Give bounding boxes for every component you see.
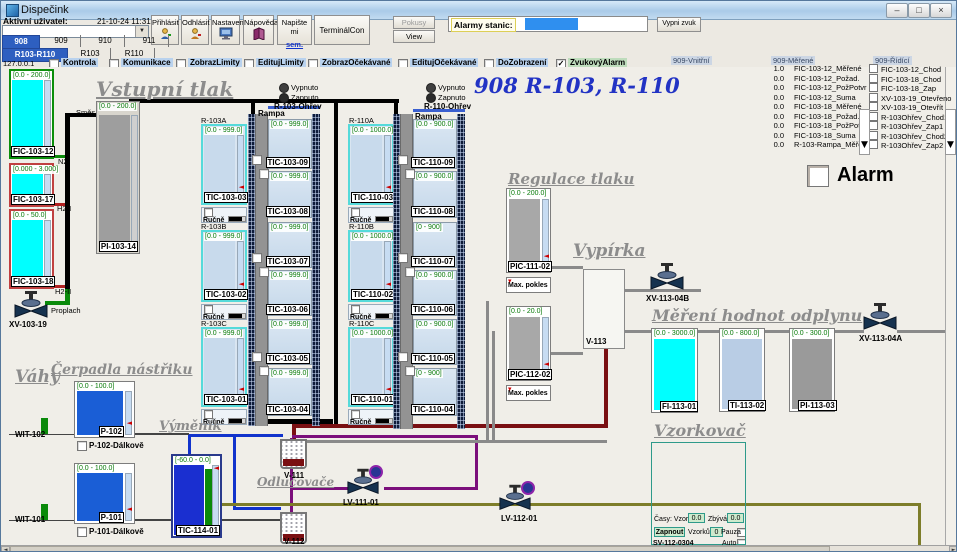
merene-value: 0.0 [746,112,794,122]
merene-value: 0.0 [746,131,794,141]
gauge-label: FIC-103-12 [11,146,55,157]
pipe-label-h2ii: H2-II [55,287,71,296]
gauge-tic-103-05[interactable]: [0.0 - 999.0] TIC-103-05 [268,319,312,365]
merene-scrollbar[interactable]: ▼ [859,109,870,155]
gauge-label: PIC-112-02 [508,369,552,380]
ridici-row[interactable]: XV-103-19_Otevřeno [869,93,957,103]
pipe-pic111-v113 [549,266,583,269]
p101-remote-label: P-101-Dálkově [89,527,144,536]
setpoint-marker-icon: ◄ [386,281,391,288]
gauge-label: TIC-103-03 [204,192,248,203]
separator-label: V-111 [284,471,304,480]
reactor-label-r110a: R-110A [349,116,374,125]
terminal-con-button[interactable]: TerminálCon [314,15,370,45]
gauge-tic-110-04[interactable]: [0 - 900] TIC-110-04 [413,368,457,416]
gauge-label: TIC-103-02 [204,289,248,300]
gauge-range: [0.0 - 100.0] [76,383,115,391]
merene-value: 0.0 [746,83,794,93]
vessel-v-113[interactable]: V-113 [583,269,625,349]
gauge-label: TI-113-02 [728,400,766,411]
sampler-remaining-label: Zbývá: [708,515,729,524]
pipe-blue-down [233,437,236,510]
gauge-range: [0.0 - 999.0] [204,233,243,241]
gauge-fill [792,339,832,409]
sampler-count-label: Vzorků: [688,528,712,537]
ridici-scrollbar[interactable]: ▼ [945,109,956,155]
ridici-checkbox[interactable] [869,83,878,92]
gauge-tic-110-09[interactable]: [0.0 - 900.0] TIC-110-09 [413,119,457,169]
gauge-range: [0.0 - 50.0] [12,212,47,220]
gauge-label: FI-113-01 [660,401,698,412]
gauge-label: TIC-103-08 [266,206,310,217]
ridici-row[interactable]: XV-103-19_Otevřít [869,102,957,112]
gauge-label: P-101 [99,512,124,523]
reactor-label-r103c: R-103C [201,319,227,328]
merene-list: 1.0FIC-103-12_Měřené0.0FIC-103-12_Požad.… [746,64,862,150]
ridici-checkbox[interactable] [869,112,878,121]
reactor-label-r103b: R-103B [201,222,226,231]
gauge-tic-103-04[interactable]: [0.0 - 999.0] TIC-103-04 [268,368,312,416]
manual-bar [375,313,393,319]
ridici-row[interactable]: R-103Ohřev_Chod1 [869,112,957,122]
gauge-label: TIC-103-04 [266,404,310,415]
close-button[interactable]: × [930,3,952,18]
gauge-range: [0.0 - 999.0] [270,321,309,329]
mode-label: Max. pokles [508,281,548,290]
gauge-fic-103-12[interactable]: ◄ [0.0 - 200.0] FIC-103-12 [9,69,54,159]
gauge-range: [0.0 - 900.0] [415,173,454,181]
gauge-range: [0.0 - 999.0] [270,370,309,378]
settings-button[interactable]: Nastavení [211,15,240,45]
valve-icon [13,291,49,319]
merene-row[interactable]: 0.0FIC-103-18_Měřené [746,102,862,112]
pipe-label-proplach: Proplach [51,306,81,315]
gauge-range: [0.0 - 100.0] [76,465,115,473]
ridici-checkbox[interactable] [869,121,878,130]
merene-row[interactable]: 1.0FIC-103-12_Měřené [746,64,862,74]
alarm-checkbox[interactable] [807,165,829,187]
ridici-name: R-103Ohřev_Zap2 [881,141,943,151]
gauge-label: TIC-110-01 [351,394,395,405]
manual-mode-r103b[interactable]: Ručně [201,304,247,320]
valve-label: LV-112-01 [501,514,537,523]
pipe-purple-valve-out [384,487,478,490]
ridici-list: FIC-103-12_ChodFIC-103-18_ChodFIC-103-18… [869,64,957,150]
merene-name: FIC-103-12_Měřené [794,64,862,74]
pipe-purple-right [475,435,478,489]
alarm-selection-highlight [525,18,578,30]
heading-main-title: 908 R-103, R-110 [474,73,680,98]
sampler-pause-label: Pauza [721,528,741,537]
gauge-range: [0.000 - 3.000] [12,166,59,174]
manual-mode-r110b[interactable]: Ručně [348,304,394,320]
pipe-offgas-main [292,424,608,428]
gauge-range: [0.0 - 300.0] [791,330,830,338]
gauge-slider[interactable] [131,115,138,251]
merene-row[interactable]: 0.0FIC-103-12_Požad. [746,74,862,84]
heading-mereni-odplynu: Měření hodnot odplynu [652,306,862,325]
gauge-range: [0.0 - 1000.0] [351,127,394,135]
gauge-range: [0.0 - 200.0] [508,190,547,198]
gauge-fill [99,115,130,251]
ridici-row[interactable]: FIC-103-18_Chod [869,74,957,84]
gauge-fi-113-01[interactable]: [0.0 - 3000.0] FI-113-01 [651,328,698,413]
merene-value: 0.0 [746,121,794,131]
gauge-range: [0.0 - 20.0] [508,308,543,316]
gauge-range: [0.0 - 200.0] [98,103,137,111]
gauge-range: [0.0 - 900.0] [415,121,454,129]
minimize-button[interactable]: – [886,3,908,18]
gauge-fill [654,339,695,410]
pipe-label-smes: Směs [76,108,95,117]
valve-label: XV-103-19 [9,320,47,329]
r103-ohrev-off-indicator[interactable] [279,83,289,93]
merene-name: FIC-103-18_Suma [794,131,856,141]
sampler-device-label: SV-112-0304 [653,539,693,548]
manual-bar [228,216,246,222]
ridici-checkbox[interactable] [869,102,878,111]
alarm-label: Alarm [837,163,894,187]
valve-xv-113-04a[interactable] [862,303,898,336]
write-me-button[interactable]: Napište mi sem. [277,15,312,45]
valve-icon [862,303,898,331]
window-title: Dispečink [21,4,69,16]
gauge-tic-103-02[interactable]: ◄ [0.0 - 999.0] TIC-103-02 [201,230,247,302]
heading-regulace-tlaku: Regulace tlaku [508,170,634,188]
merene-name: FIC-103-12_Požad. [794,74,859,84]
scrollbar-thumb[interactable] [10,546,830,552]
gauge-range: [0.0 - 1000.0] [351,330,394,338]
gauge-range: [0.0 - 999.0] [270,121,309,129]
heading-vstupni-tlak: Vstupní tlak [96,77,233,101]
merene-value: 1.0 [746,64,794,74]
reactor-wall-r110-right [457,114,465,429]
ridici-row[interactable]: FIC-103-18_Zap [869,83,957,93]
gauge-range: [0.0 - 200.0] [12,72,51,80]
mode-tick-icon: ▾ [508,278,512,285]
station-alarms-field[interactable]: Alarmy stanic: [448,16,648,32]
gauge-pic-112-02[interactable]: ◄ [0.0 - 20.0] PIC-112-02 [506,306,551,381]
view-button[interactable]: View [393,30,435,43]
r103-ohrev-on-label: Zapnuto [291,93,319,102]
heading-vymenik: Výměník [159,419,222,434]
r103-ohrev-label: R-103-Ohřev [274,102,322,111]
pipe-v113-down [604,349,608,425]
zone-checkbox-r110[interactable] [405,366,415,376]
merene-value: 0.0 [746,74,794,84]
gauge-tic-110-05[interactable]: [0.0 - 900.0] TIC-110-05 [413,319,457,365]
valve-xv-113-04b[interactable] [649,263,685,296]
merene-name: FIC-103-18_PožPotvr [794,121,867,131]
r103-ohrev-off-label: Vypnuto [291,83,318,92]
merene-name: FIC-103-12_PožPotvr [794,83,867,93]
pipe-olive-main [221,503,921,506]
lv-111-status-indicator [369,465,383,479]
gauge-range: [0.0 - 900.0] [415,321,454,329]
p101-remote-checkbox[interactable] [77,527,87,537]
pokusy-button[interactable]: Pokusy [393,16,435,29]
gauge-tic-110-06[interactable]: [0.0 - 900.0] TIC-110-06 [413,270,457,316]
gauge-label: TIC-110-06 [411,304,455,315]
gauge-fill [509,199,540,270]
merene-row[interactable]: 0.0FIC-103-18_Suma [746,131,862,141]
manual-bar [228,313,246,319]
setpoint-marker-icon: ◄ [386,184,391,191]
pic-112-mode-box[interactable]: Max. pokles ▾ [506,385,551,401]
pipe-label-h2i: H2-I [57,204,71,213]
reactor-label-r110c: R-110C [349,319,374,328]
p102-remote-label: P-102-Dálkově [89,441,144,450]
gauge-ti-113-02[interactable]: [0.0 - 800.0] TI-113-02 [719,328,765,412]
pipe-feed-main [65,113,70,291]
sampler-start-button[interactable]: Zapnout [654,527,685,537]
pipe-gray-riser1 [486,301,489,440]
ridici-row[interactable]: R-103Ohřev_Chod2 [869,131,957,141]
gauge-range: [0.0 - 1000.0] [351,233,394,241]
logout-button[interactable]: Odhlásit [181,15,209,45]
merene-value: 0.0 [746,93,794,103]
valve-label: XV-113-04A [859,334,902,343]
p102-remote-checkbox[interactable] [77,441,87,451]
reactor-wall-r103-right [312,114,320,426]
ridici-row[interactable]: R-103Ohřev_Zap1 [869,121,957,131]
heading-vzorkovac: Vzorkovač [654,421,746,440]
manual-mode-r103a[interactable]: Ručně [201,207,247,223]
gauge-range: [0.0 - 999.0] [204,127,243,135]
gauge-range: [0.0 - 999.0] [270,224,309,232]
gauge-tic-103-06[interactable]: [0.0 - 999.0] TIC-103-06 [268,270,312,316]
sampler-remaining-value: 0.0 [727,513,744,523]
gauge-label: TIC-110-07 [411,256,455,267]
gauge-range: [0.0 - 999.0] [204,330,243,338]
tab-908[interactable]: 908 [2,35,40,49]
setpoint-marker-icon: ◄ [127,506,132,513]
gauge-tic-103-07[interactable]: [0.0 - 999.0] TIC-103-07 [268,222,312,268]
manual-bar [375,216,393,222]
valve-label: LV-111-01 [343,498,379,507]
zone-checkbox-r103[interactable] [252,155,262,165]
help-button[interactable]: Nápověda [243,15,274,45]
wit-101-label: WIT-101 [15,515,45,524]
sampler-auto-label: Auto [722,539,736,548]
pipe-gray-mid [292,440,607,443]
gauge-tic-110-08[interactable]: [0.0 - 900.0] TIC-110-08 [413,171,457,218]
gauge-label: PI-113-03 [798,400,837,411]
gauge-label: TIC-114-01 [176,525,220,536]
settings-monitor-icon [219,27,233,40]
merene-row[interactable]: 0.0FIC-103-18_Požad. [746,112,862,122]
gauge-label: TIC-110-08 [411,206,455,217]
gauge-tic-114-01[interactable]: ◄ [-60.0 - 0.0] TIC-114-01 [171,454,222,538]
pipe-blue-tic114 [188,437,191,454]
maximize-button[interactable]: □ [908,3,930,18]
ridici-checkbox[interactable] [869,93,878,102]
merene-row[interactable]: 0.0R-103-Rampa_Měřené [746,140,862,150]
pipe-olive-down [918,503,921,545]
gauge-range: [0.0 - 999.0] [270,272,309,280]
mode-tick-icon: ▾ [508,386,512,393]
pipe-gray-riser2 [492,331,495,440]
gauge-tic-103-03[interactable]: ◄ [0.0 - 999.0] TIC-103-03 [201,124,247,205]
gauge-label: TIC-110-02 [351,289,395,300]
gauge-label: TIC-103-05 [266,353,310,364]
r110-ohrev-off-indicator[interactable] [426,83,436,93]
separator-label: V-112 [284,537,304,546]
gauge-label: P-102 [99,426,124,437]
r110-ohrev-off-label: Vypnuto [438,83,465,92]
merene-name: FIC-103-12_Suma [794,93,856,103]
logout-icon [189,27,202,40]
merene-value: 0.0 [746,102,794,112]
scroll-down-icon[interactable]: ▼ [860,141,869,150]
valve-label: XV-113-04B [646,294,689,303]
app-window: Dispečink – □ × Aktivní uživatel: 21-10-… [0,0,957,552]
r110-ohrev-on-label: Zapnuto [438,93,466,102]
scroll-left-icon[interactable]: ◄ [1,546,10,552]
setpoint-marker-icon: ◄ [127,420,132,427]
pipe-xv04a-out [897,330,945,333]
pipe-r110-left-wall [334,101,338,426]
mute-sound-button[interactable]: Vypni zvuk [657,17,701,32]
separator-v-111[interactable] [280,439,307,469]
gauge-tic-103-08[interactable]: [0.0 - 999.0] TIC-103-08 [268,171,312,218]
ridici-row[interactable]: R-103Ohřev_Zap2 [869,140,957,150]
gauge-pic-111-02[interactable]: ◄ [0.0 - 200.0] PIC-111-02 [506,188,551,273]
reactor-label-r103a: R-103A [201,116,226,125]
manual-mode-r110c[interactable]: Ručně [348,409,394,425]
heading-cerpadla: Čerpadla nástřiku [51,362,193,378]
gauge-label: TIC-103-09 [266,157,310,168]
zone-checkbox-r110[interactable] [405,169,415,179]
zone-checkbox-r110[interactable] [398,352,408,362]
zone-checkbox-r103[interactable] [259,169,269,179]
gauge-fill [722,339,762,409]
zone-checkbox-r103[interactable] [252,352,262,362]
tab-910[interactable]: 910 [86,35,125,47]
gauge-range: [0 - 900] [415,370,443,378]
gauge-label: FIC-103-18 [11,276,55,287]
gauge-p-101[interactable]: ◄ [0.0 - 100.0] P-101 [74,463,135,524]
sampler-time-value: 0.0 [688,513,705,523]
setpoint-marker-icon: ◄ [239,184,244,191]
ridici-checkbox[interactable] [869,140,878,149]
rampa-label-r110: Rampa [415,112,442,121]
merene-name: FIC-103-18_Měřené [794,102,862,112]
scroll-down-icon[interactable]: ▼ [946,141,955,150]
gauge-label: TIC-110-04 [411,404,455,415]
tab-909[interactable]: 909 [42,35,81,47]
setpoint-marker-icon: ◄ [544,253,549,260]
station-alarms-label: Alarmy stanic: [451,18,516,32]
setpoint-marker-icon: ◄ [214,465,219,472]
gauge-label: FIC-103-17 [11,194,55,205]
gauge-pi-103-14[interactable]: [0.0 - 200.0] PI-103-14 [96,101,140,254]
gauge-tic-110-03[interactable]: ◄ [0.0 - 1000.0] TIC-110-03 [348,124,394,205]
valve-icon [649,263,685,291]
manual-mode-r110a[interactable]: Ručně [348,207,394,223]
gauge-tic-110-07[interactable]: [0 - 900] TIC-110-07 [413,222,457,268]
gauge-pi-113-03[interactable]: [0.0 - 300.0] PI-113-03 [789,328,835,412]
help-book-icon [252,27,266,40]
setpoint-marker-icon: ◄ [239,281,244,288]
gauge-label: TIC-110-03 [351,192,395,203]
mode-label: Max. pokles [508,389,548,398]
pipe-blue-v112 [233,507,281,510]
scroll-right-icon[interactable]: ► [949,546,957,552]
ridici-row[interactable]: FIC-103-12_Chod [869,64,957,74]
reactor-label-r110b: R-110B [349,222,374,231]
gauge-label: TIC-103-01 [204,394,248,405]
gauge-fill [12,80,43,156]
gauge-label: PIC-111-02 [508,261,552,272]
heading-vypirka: Vypírka [573,241,645,261]
zone-checkbox-r103[interactable] [252,253,262,263]
pipe-pic112-v113 [549,352,583,355]
list-908-vnitrni-label: 909-Vnitřní [671,56,712,65]
manual-label: Ručně [350,418,371,427]
zone-checkbox-r110[interactable] [398,155,408,165]
merene-row[interactable]: 0.0FIC-103-12_PožPotvr [746,83,862,93]
gauge-range: [0 - 900] [415,224,443,232]
merene-value: 0.0 [746,140,794,150]
gauge-fic-103-17[interactable]: ◄ [0.000 - 3.000] FIC-103-17 [9,163,54,207]
gauge-label: TIC-110-09 [411,157,455,168]
pipe-purple-top [292,435,478,438]
gauge-range: [-60.0 - 0.0] [174,457,212,465]
setpoint-marker-icon: ◄ [239,386,244,393]
lv-112-status-indicator [521,481,535,495]
zone-checkbox-r103[interactable] [259,267,269,277]
gauge-fic-103-18[interactable]: ◄ [0.0 - 50.0] FIC-103-18 [9,209,54,289]
gauge-slider[interactable] [125,473,132,521]
gauge-label: TIC-103-06 [266,304,310,315]
ridici-checkbox[interactable] [869,64,878,73]
gauge-range: [0.0 - 900.0] [415,272,454,280]
merene-row[interactable]: 0.0FIC-103-12_Suma [746,93,862,103]
pic-111-mode-box[interactable]: Max. pokles ▾ [506,277,551,293]
gauge-range: [0.0 - 800.0] [721,330,760,338]
gauge-label: TIC-103-07 [266,256,310,267]
zone-checkbox-r103[interactable] [259,366,269,376]
tab-911[interactable]: 911 [130,35,169,47]
horizontal-scrollbar[interactable]: ◄ ► [1,545,957,552]
zone-checkbox-r110[interactable] [398,253,408,263]
setpoint-marker-icon: ◄ [544,361,549,368]
manual-bar [228,418,246,424]
manual-bar [375,418,393,424]
ridici-checkbox[interactable] [869,131,878,140]
gauge-range: [0.0 - 3000.0] [653,330,696,338]
gauge-label: TIC-110-05 [411,353,455,364]
gauge-slider[interactable] [125,391,132,435]
gauge-tic-110-02[interactable]: ◄ [0.0 - 1000.0] TIC-110-02 [348,230,394,302]
wit-102-label: WIT-102 [15,430,45,439]
gauge-tic-110-01[interactable]: ◄ [0.0 - 1000.0] TIC-110-01 [348,327,394,407]
merene-row[interactable]: 0.0FIC-103-18_PožPotvr [746,121,862,131]
zone-checkbox-r110[interactable] [405,267,415,277]
ridici-checkbox[interactable] [869,74,878,83]
gauge-label: PI-103-14 [99,241,138,252]
setpoint-marker-icon: ◄ [386,386,391,393]
r110-ohrev-label: R-110-Ohřev [424,102,471,111]
gauge-tic-103-09[interactable]: [0.0 - 999.0] TIC-103-09 [268,119,312,169]
gauge-tic-103-01[interactable]: ◄ [0.0 - 999.0] TIC-103-01 [201,327,247,407]
pipe-label-n2: N2 [58,157,68,166]
gauge-p-102[interactable]: ◄ [0.0 - 100.0] P-102 [74,381,135,438]
gauge-range: [0.0 - 999.0] [270,173,309,181]
vessel-label: V-113 [586,337,606,346]
merene-name: FIC-103-18_Požad. [794,112,859,122]
